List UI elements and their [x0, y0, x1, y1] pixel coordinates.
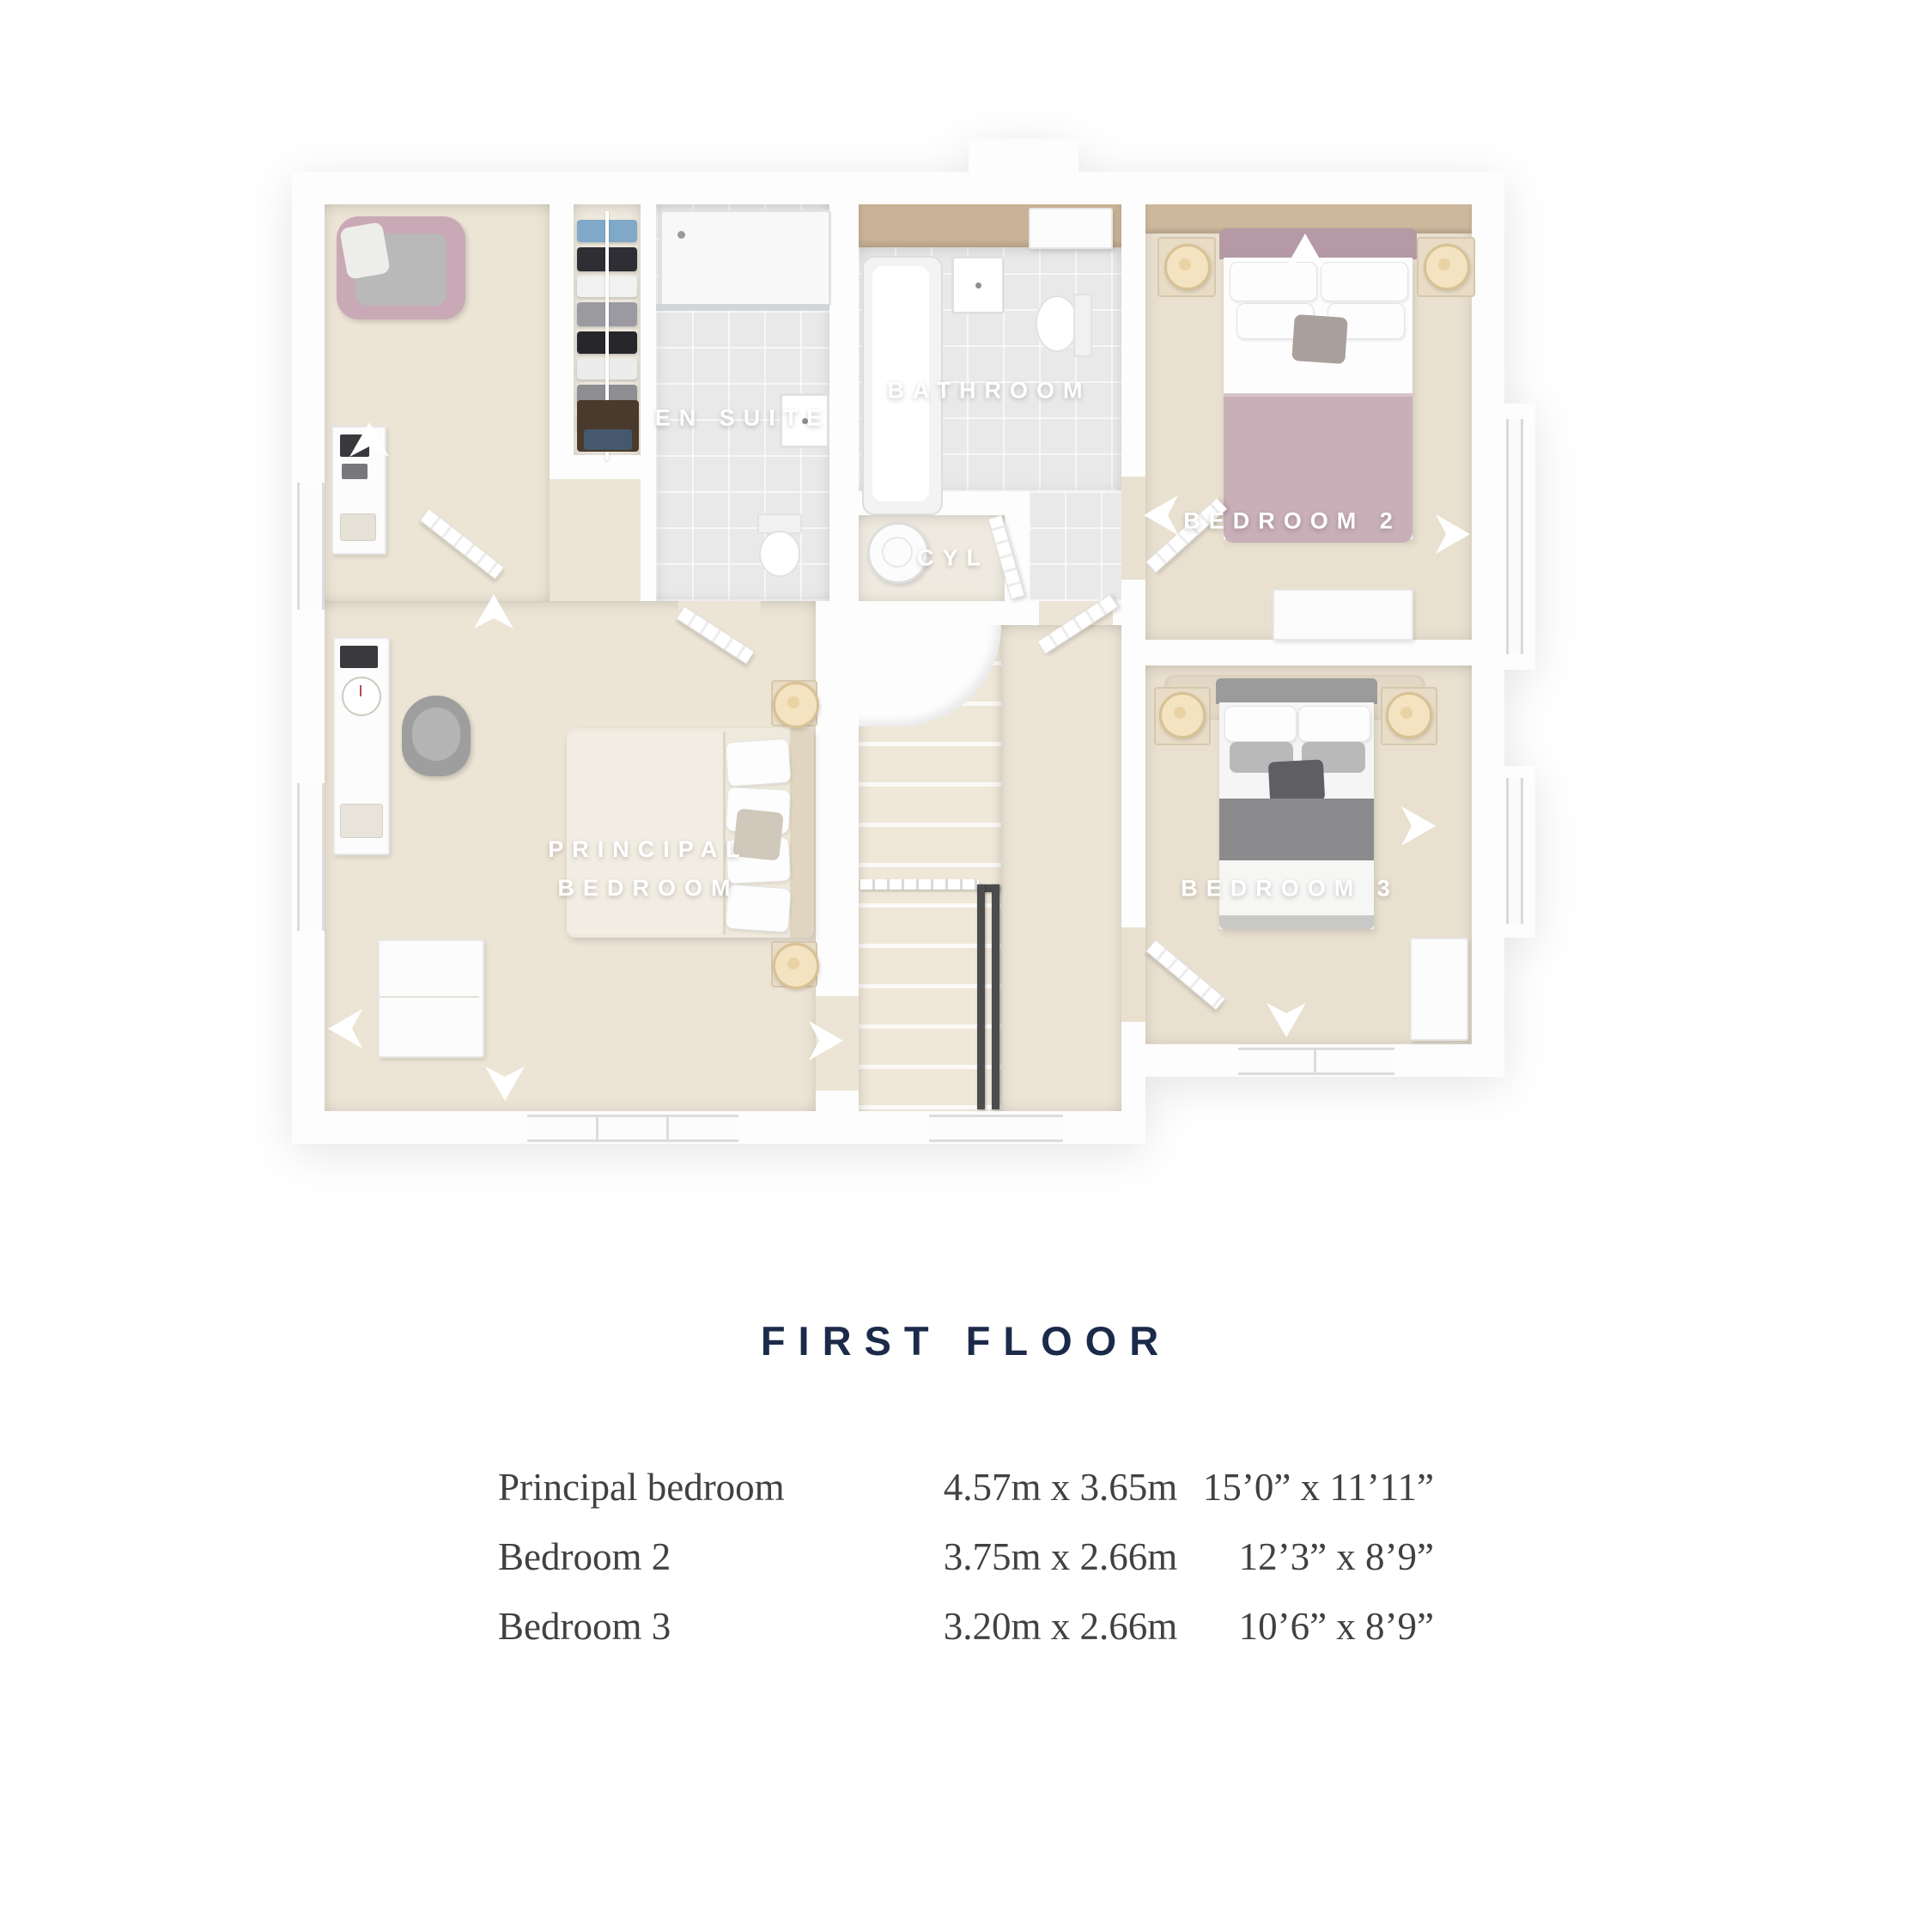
room-label-bedroom3: BEDROOM 3 — [1181, 876, 1399, 902]
bedroom2-doorway-floor — [1121, 477, 1145, 580]
window-mullion — [666, 1117, 669, 1139]
clock — [342, 677, 381, 716]
bathroom-cabinet — [1029, 208, 1113, 249]
table-lamp — [1164, 244, 1211, 290]
room-label-ensuite: EN SUITE — [655, 405, 831, 432]
bed-duvet-stripe — [1219, 799, 1374, 860]
floor-title: FIRST FLOOR — [0, 1317, 1932, 1364]
armchair-pillow — [339, 222, 391, 280]
bed-pillow — [725, 738, 791, 787]
room-label-bathroom: BATHROOM — [888, 378, 1091, 404]
window-mullion — [596, 1117, 598, 1139]
window-bottom-bedroom3 — [1238, 1048, 1394, 1075]
bed3-headboard — [1216, 678, 1377, 704]
room-label-principal: PRINCIPAL BEDROOM — [481, 830, 816, 908]
bathroom-floor-lower — [1029, 491, 1121, 601]
window-left-lower — [297, 783, 325, 931]
stair-baluster-rail — [860, 879, 979, 890]
room-name: Bedroom 2 — [498, 1534, 671, 1579]
window-bottom-principal — [527, 1115, 738, 1142]
bathroom-toilet — [1036, 295, 1078, 352]
bathroom-toilet-tank — [1073, 294, 1092, 357]
table-row: Principal bedroom 4.57m x 3.65m 15’0” x … — [498, 1465, 1434, 1534]
table-lamp — [773, 682, 819, 728]
bay-window-bedroom2 — [1506, 419, 1523, 654]
shower-drain — [677, 231, 685, 239]
room-name: Principal bedroom — [498, 1465, 785, 1510]
stair-handrail — [977, 884, 985, 1109]
dimensions-table: Principal bedroom 4.57m x 3.65m 15’0” x … — [498, 1465, 1434, 1674]
bay-window-bedroom3 — [1506, 778, 1523, 924]
bedroom2-bed — [1224, 258, 1413, 539]
bed-pillow — [1224, 706, 1297, 742]
room-size-metric: 3.75m x 2.66m — [919, 1534, 1202, 1579]
desk-books — [340, 646, 378, 668]
bedroom3-wardrobe — [1410, 938, 1468, 1041]
breakfast-tray — [340, 804, 383, 838]
table-row: Bedroom 3 3.20m x 2.66m 10’6” x 8’9” — [498, 1604, 1434, 1674]
landing-floor — [1001, 625, 1121, 1111]
window-mullion — [1314, 1050, 1316, 1072]
armchair — [337, 216, 465, 319]
bed-footboard — [1219, 915, 1374, 929]
table-lamp — [1386, 692, 1432, 738]
room-size-imperial: 10’6” x 8’9” — [1239, 1604, 1434, 1649]
table-lamp — [1424, 244, 1470, 290]
desk-chair — [402, 696, 471, 776]
suitcase — [577, 400, 639, 452]
dressing-strip-floor — [550, 479, 641, 601]
bathroom-sink — [951, 256, 1005, 314]
room-size-metric: 3.20m x 2.66m — [919, 1604, 1202, 1649]
bedroom3-doorway-floor — [1121, 927, 1145, 1022]
stair-handrail — [992, 884, 999, 1109]
bed-pillow — [1321, 262, 1408, 301]
chair-seat — [412, 708, 460, 761]
window-left-upper — [297, 483, 325, 610]
table-lamp — [1159, 692, 1206, 738]
ensuite-toilet — [759, 531, 800, 577]
room-label-bedroom2: BEDROOM 2 — [1183, 508, 1401, 535]
table-row: Bedroom 2 3.75m x 2.66m 12’3” x 8’9” — [498, 1534, 1434, 1604]
bed2-headboard — [1219, 228, 1417, 259]
folded-blanket — [584, 429, 632, 450]
console-tray — [340, 513, 376, 541]
floorplan-page: { "title": "FIRST FLOOR", "rooms": { "pr… — [0, 0, 1932, 1932]
shower-tray — [659, 210, 831, 307]
console-books — [342, 464, 368, 479]
drawer-line — [380, 996, 479, 998]
room-size-imperial: 12’3” x 8’9” — [1239, 1534, 1434, 1579]
dressing-table — [333, 637, 390, 855]
room-size-metric: 4.57m x 3.65m — [919, 1465, 1202, 1510]
room-name: Bedroom 3 — [498, 1604, 671, 1649]
chest-of-drawers — [378, 939, 484, 1058]
bed-pillow — [1298, 706, 1370, 742]
bed-pillow — [1230, 262, 1317, 301]
bed-cushion — [1291, 314, 1348, 364]
room-label-cylinder: CYL — [917, 545, 989, 572]
room-size-imperial: 15’0” x 11’11” — [1203, 1465, 1434, 1510]
window-bottom-landing — [929, 1115, 1063, 1142]
shower-glass-screen — [656, 304, 829, 311]
bed-cushion-dark — [1268, 759, 1325, 803]
table-lamp — [773, 943, 819, 989]
bedroom2-cabinet — [1273, 589, 1413, 641]
